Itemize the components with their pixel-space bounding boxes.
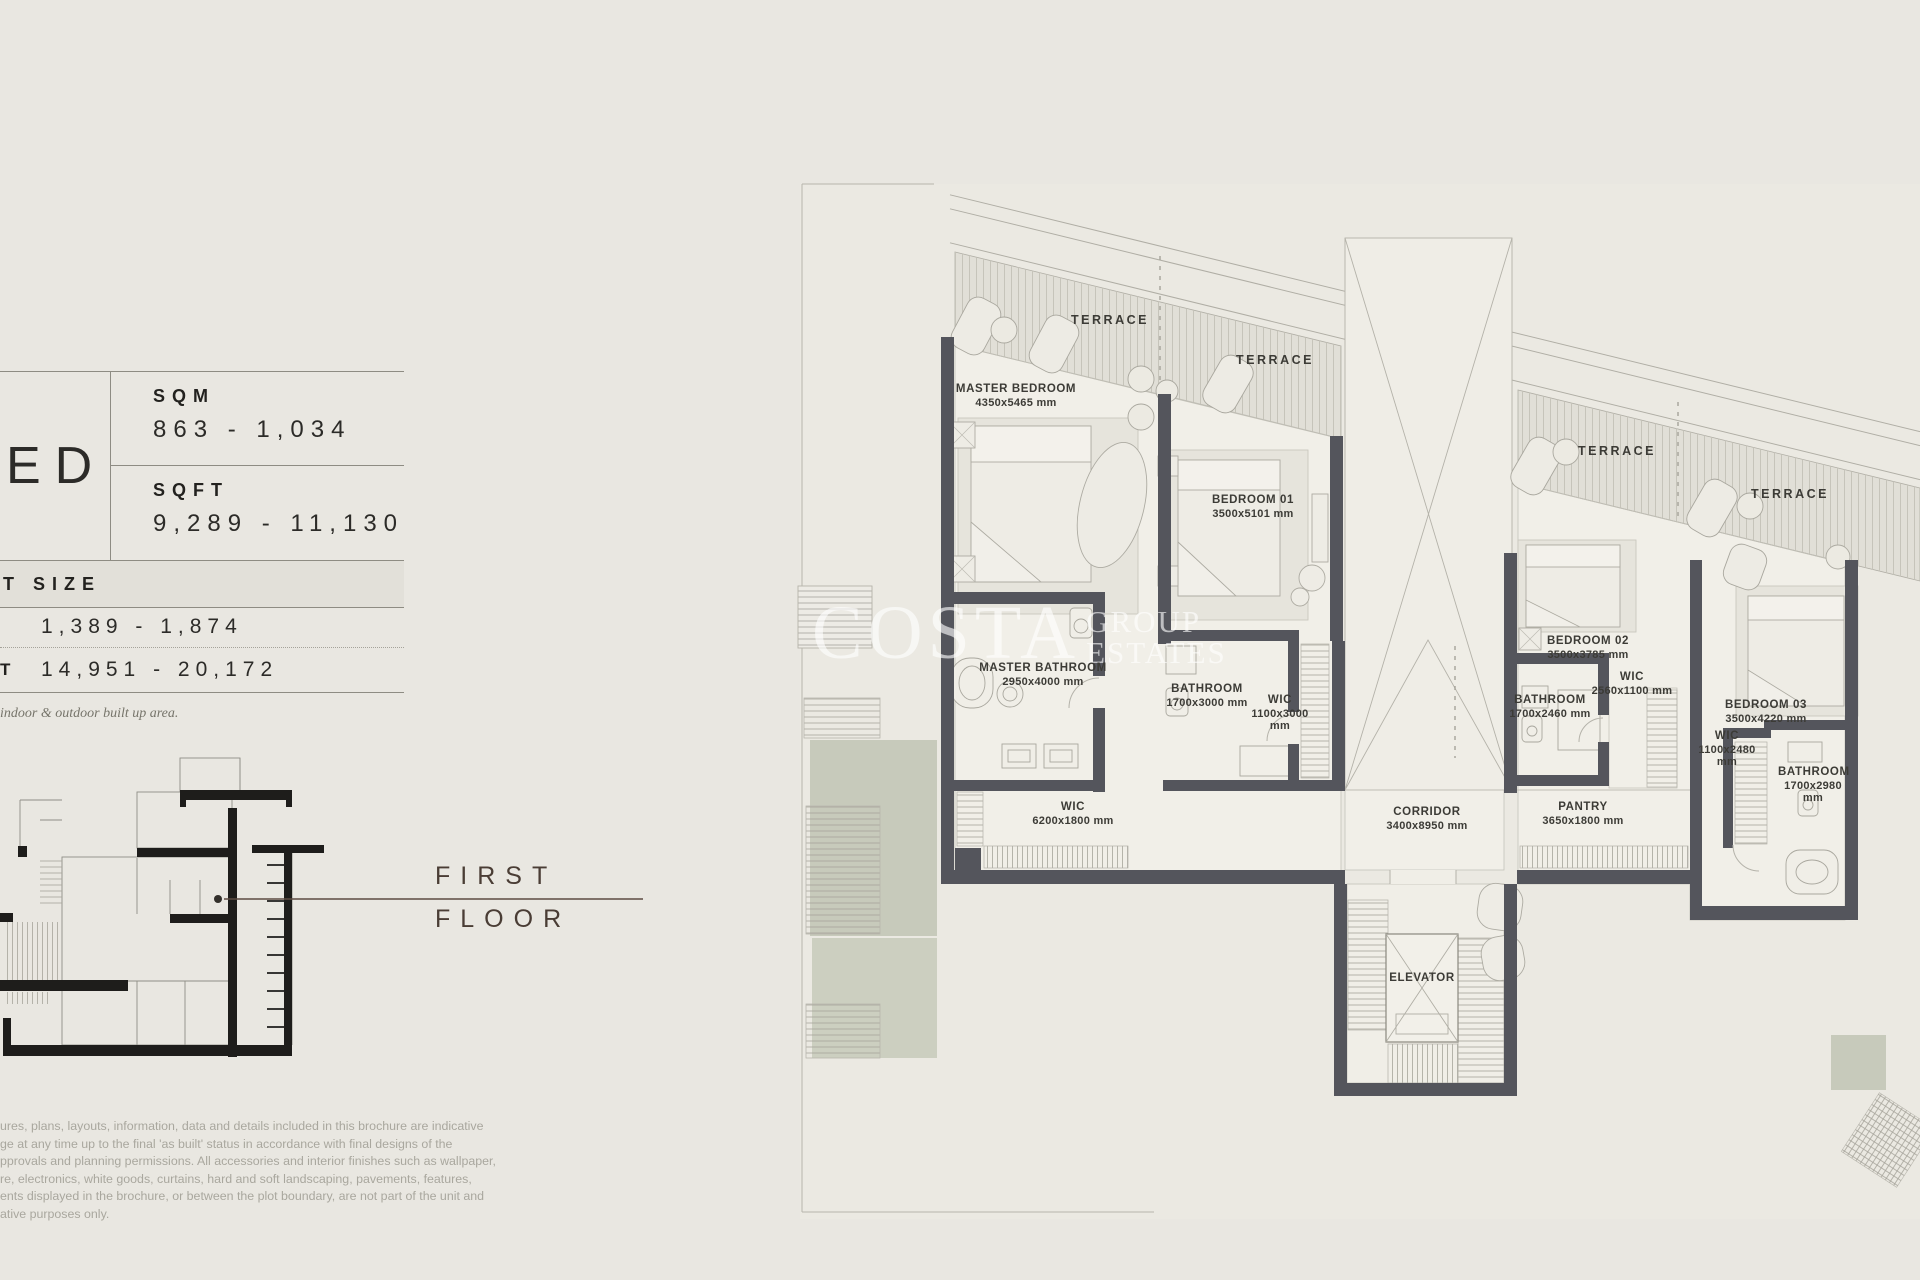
room-label-terrace-4: TERRACE: [1751, 487, 1829, 501]
room-label-bedroom-03: BEDROOM 033500x4220 mm: [1725, 699, 1807, 725]
sqm-cell: SQM 863 - 1,034: [111, 372, 404, 466]
section-stair-marks: [267, 865, 284, 1027]
unit-spec-table: ED SQM 863 - 1,034 SQFT 9,289 - 11,130: [0, 371, 404, 561]
room-label-elevator: ELEVATOR: [1389, 972, 1455, 984]
floor-name-line1: FIRST: [435, 862, 557, 891]
built-up-area-note: indoor & outdoor built up area.: [0, 706, 178, 722]
room-label-wic-bedroom-02: WIC2560x1100 mm: [1592, 671, 1673, 697]
room-label-bathroom-03: BATHROOM1700x2980 mm: [1778, 766, 1848, 804]
room-label-master-bedroom: MASTER BEDROOM4350x5465 mm: [956, 383, 1076, 409]
bed-count-cell: ED: [0, 372, 111, 560]
sqft-cell: SQFT 9,289 - 11,130: [111, 466, 404, 560]
disclaimer-line: pprovals and planning permissions. All a…: [0, 1153, 436, 1171]
room-label-corridor: CORRIDOR3400x8950 mm: [1386, 806, 1467, 832]
plot-size-row-sqm: 1,389 - 1,874: [0, 607, 404, 648]
room-label-bathroom-02: BATHROOM1700x2460 mm: [1509, 694, 1590, 720]
room-label-bedroom-01: BEDROOM 013500x5101 mm: [1212, 494, 1294, 520]
section-level-dot: [214, 895, 222, 903]
room-label-bathroom-01: BATHROOM1700x3000 mm: [1166, 683, 1247, 709]
room-label-bedroom-02: BEDROOM 023500x3785 mm: [1547, 635, 1629, 661]
disclaimer: ures, plans, layouts, information, data …: [0, 1118, 436, 1224]
room-label-pantry: PANTRY3650x1800 mm: [1542, 801, 1623, 827]
disclaimer-line: ures, plans, layouts, information, data …: [0, 1118, 436, 1136]
room-label-terrace-2: TERRACE: [1236, 353, 1314, 367]
disclaimer-line: re, electronics, white goods, curtains, …: [0, 1171, 436, 1189]
disclaimer-line: ents displayed in the brochure, or betwe…: [0, 1188, 436, 1206]
plot-sqm-value: 1,389 - 1,874: [0, 615, 243, 639]
brochure-page: ED SQM 863 - 1,034 SQFT 9,289 - 11,130 T…: [0, 0, 1920, 1280]
green-area: [1831, 1035, 1886, 1090]
room-label-terrace-3: TERRACE: [1578, 444, 1656, 458]
floor-name-line2: FLOOR: [435, 905, 571, 934]
void-double-height: [1345, 238, 1512, 790]
elevator-cab: [1386, 934, 1458, 1042]
room-label-wic-bedroom-03: WIC1100x2480 mm: [1692, 730, 1762, 768]
sqm-value: 863 - 1,034: [153, 416, 404, 444]
bed-count-fragment: ED: [0, 436, 106, 496]
sqm-label: SQM: [153, 386, 404, 407]
room-label-wic-master: WIC6200x1800 mm: [1032, 801, 1113, 827]
disclaimer-line: ge at any time up to the final 'as built…: [0, 1136, 436, 1154]
sqft-label: SQFT: [153, 480, 404, 501]
plot-sqft-value: 14,951 - 20,172: [14, 658, 278, 682]
room-label-master-bathroom: MASTER BATHROOM2950x4000 mm: [979, 662, 1107, 688]
plot-size-header: T SIZE: [0, 561, 404, 608]
room-label-terrace-1: TERRACE: [1071, 313, 1149, 327]
room-label-wic-bedroom-01: WIC1100x3000 mm: [1245, 694, 1315, 732]
plot-size-header-text: T SIZE: [0, 574, 101, 594]
disclaimer-line: ative purposes only.: [0, 1206, 436, 1224]
sqft-value: 9,289 - 11,130: [153, 510, 404, 538]
plot-sqft-label-fragment: T: [0, 660, 14, 680]
plot-size-row-sqft: T 14,951 - 20,172: [0, 648, 404, 693]
